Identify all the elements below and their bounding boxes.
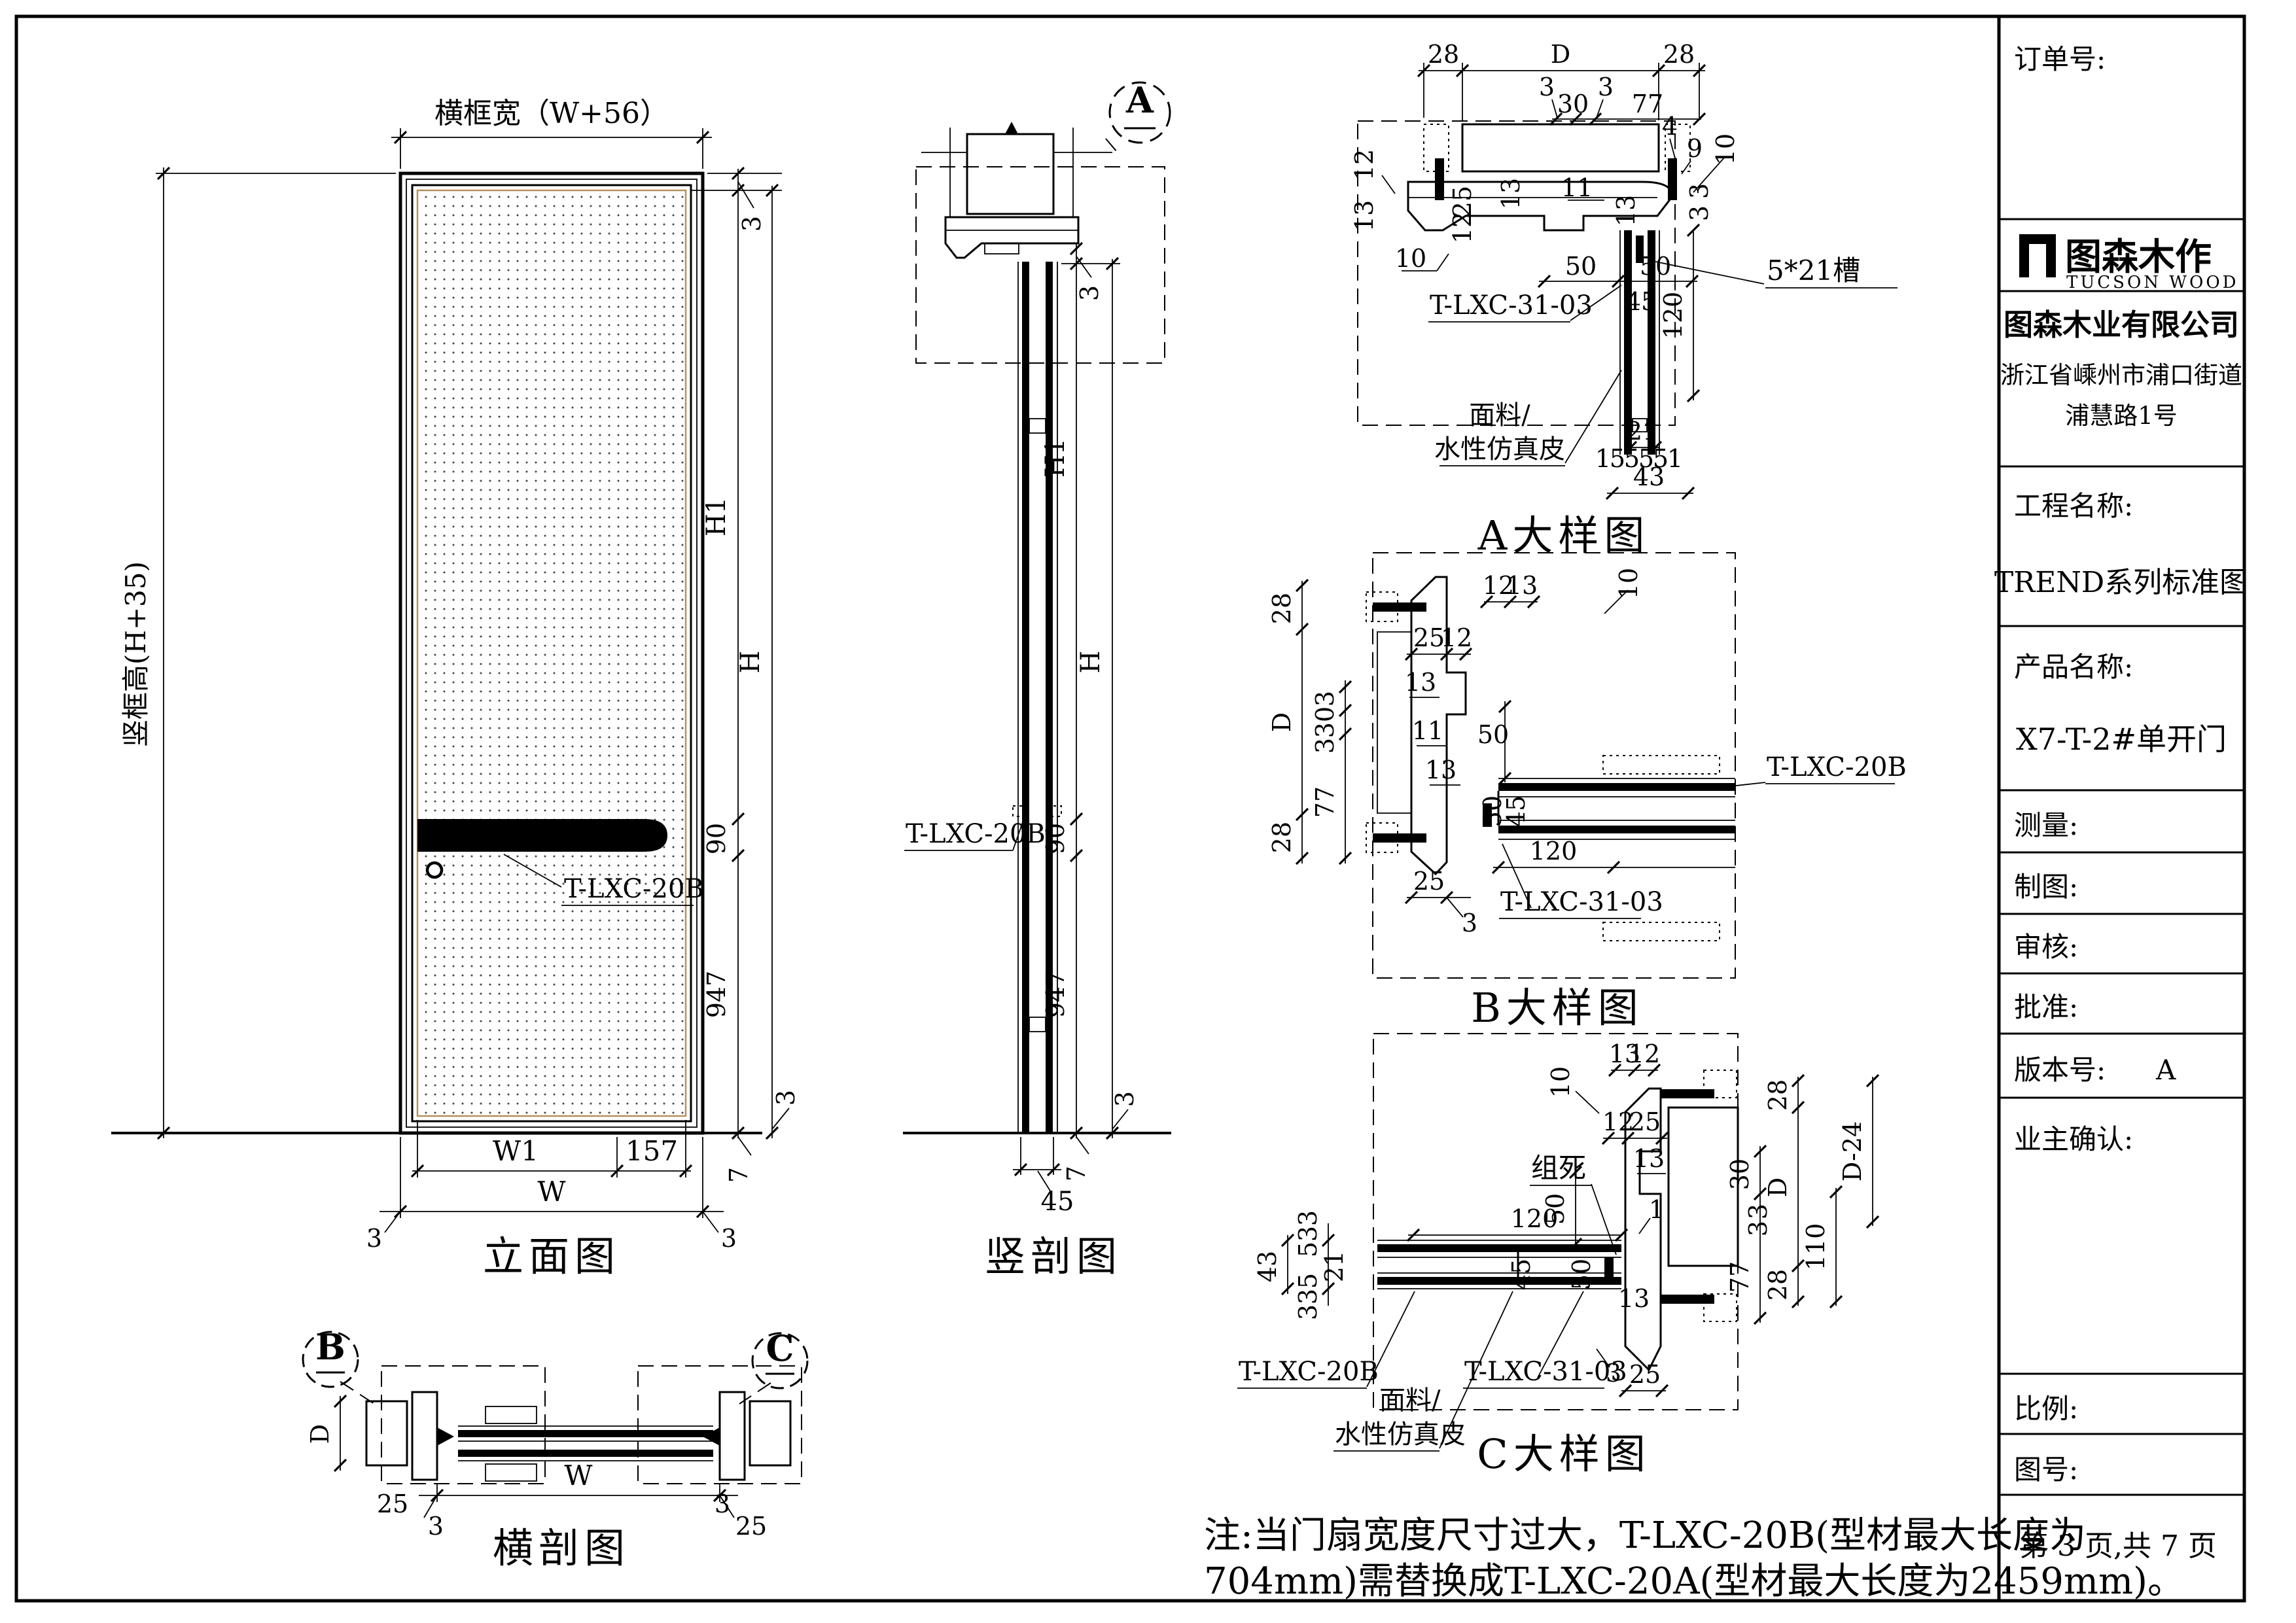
dim-25: 25 bbox=[377, 1490, 408, 1518]
dim-3: 3 bbox=[721, 1224, 737, 1253]
dim-947: 947 bbox=[702, 971, 731, 1019]
detail-a-view: 28 D 28 3 3 30 77 4 9 10 3 3 12 13 25 12… bbox=[1350, 40, 1898, 559]
label-t-lxc-31-03: T-LXC-31-03 bbox=[1430, 290, 1593, 321]
dim-28: 28 bbox=[1763, 1079, 1792, 1111]
dim-12: 12 bbox=[1441, 623, 1472, 652]
label-t-lxc-20b: T-LXC-20B bbox=[1239, 1357, 1379, 1387]
dim-110: 110 bbox=[1801, 1223, 1830, 1271]
dim-13: 13 bbox=[1425, 756, 1457, 784]
dim-77: 77 bbox=[1311, 786, 1339, 818]
draft-label: 制图: bbox=[2014, 871, 2078, 903]
label-t-lxc-20b: T-LXC-20B bbox=[1767, 752, 1907, 782]
dim-d: D bbox=[306, 1424, 334, 1444]
label-screw: 组死 bbox=[1531, 1152, 1586, 1184]
label-t-lxc-20b: T-LXC-20B bbox=[906, 819, 1046, 849]
dim-10: 10 bbox=[1395, 244, 1426, 273]
dim-3: 3 bbox=[1311, 738, 1339, 754]
caption-vertical-section: 竖剖图 bbox=[985, 1232, 1122, 1280]
dim-w: W bbox=[537, 1176, 566, 1208]
wall-hatch bbox=[1462, 124, 1659, 171]
marker-b-letter: B bbox=[315, 1326, 345, 1368]
dim-43: 43 bbox=[1633, 462, 1665, 491]
sheet-border bbox=[16, 16, 2244, 1601]
dim-120: 120 bbox=[1530, 837, 1578, 865]
dim-45: 45 bbox=[1041, 1187, 1074, 1217]
dim-45: 45 bbox=[1507, 1259, 1536, 1290]
label-t-lxc-20b: T-LXC-20B bbox=[564, 874, 704, 904]
jamb-profile bbox=[720, 1392, 745, 1480]
dim-157: 157 bbox=[626, 1135, 678, 1167]
drawing-no-label: 图号: bbox=[2014, 1454, 2078, 1486]
dim-43: 43 bbox=[1253, 1251, 1282, 1282]
dim-120: 120 bbox=[1511, 1204, 1559, 1233]
label-fabric-1: 面料/ bbox=[1469, 400, 1530, 430]
dim-d: D bbox=[1551, 40, 1570, 69]
dim-5: 5 bbox=[1294, 1273, 1322, 1289]
jamb-profile bbox=[412, 1392, 437, 1480]
dim-frame-width: 横框宽（W+56） bbox=[434, 97, 669, 130]
dim-3: 3 bbox=[428, 1512, 444, 1541]
label-fabric-2: 水性仿真皮 bbox=[1434, 434, 1565, 464]
dim-13: 13 bbox=[1350, 200, 1379, 232]
company-address-1: 浙江省嵊州市浦口街道 bbox=[2000, 361, 2242, 389]
dim-13: 13 bbox=[1506, 571, 1538, 600]
dim-7: 7 bbox=[1062, 1166, 1091, 1181]
logo-en: TUCSON WOOD bbox=[2066, 273, 2239, 292]
dim-3: 3 bbox=[737, 216, 766, 232]
dim-h1: H1 bbox=[701, 497, 732, 536]
dim-11: 11 bbox=[1561, 173, 1593, 202]
company-address-2: 浦慧路1号 bbox=[2065, 402, 2178, 430]
dim-21: 21 bbox=[1320, 1251, 1349, 1282]
dim-3: 3 bbox=[1685, 183, 1714, 199]
dim-13: 13 bbox=[1618, 1284, 1650, 1313]
dim-1: 1 bbox=[1595, 444, 1611, 473]
drawing-sheet: 订单号: 图森木作 TUCSON WOOD 图森木业有限公司 浙江省嵊州市浦口街… bbox=[0, 0, 2296, 1623]
dim-h: H bbox=[735, 651, 766, 674]
door-handle bbox=[417, 819, 667, 852]
dim-25: 25 bbox=[735, 1512, 767, 1541]
dim-w1: W1 bbox=[493, 1135, 539, 1167]
detail-c-view: 13 12 10 12 25 13 组死 50 120 1 13 45 50 3… bbox=[1237, 1034, 1879, 1478]
dim-45: 45 bbox=[1502, 795, 1530, 827]
head-frame-profile bbox=[945, 217, 1078, 258]
dim-h: H bbox=[1076, 651, 1106, 674]
dim-3: 3 bbox=[1685, 205, 1714, 221]
company-name: 图森木业有限公司 bbox=[2004, 307, 2239, 342]
project-value: TREND系列标准图 bbox=[1994, 566, 2248, 599]
dim-5: 5 bbox=[1610, 444, 1625, 473]
title-block: 订单号: 图森木作 TUCSON WOOD 图森木业有限公司 浙江省嵊州市浦口街… bbox=[1994, 16, 2248, 1601]
dim-12: 12 bbox=[1350, 149, 1379, 181]
dim-12: 12 bbox=[1448, 212, 1477, 243]
dim-12: 12 bbox=[1629, 1039, 1660, 1068]
dim-13: 13 bbox=[1612, 195, 1640, 226]
dim-3: 3 bbox=[715, 1490, 730, 1518]
dim-d: D bbox=[1267, 712, 1296, 732]
dim-3: 3 bbox=[1539, 73, 1555, 101]
dim-1: 1 bbox=[1649, 1195, 1665, 1224]
dim-3: 3 bbox=[1110, 1091, 1139, 1107]
caption-detail-c: C大样图 bbox=[1477, 1430, 1650, 1478]
dim-10: 10 bbox=[1546, 1066, 1575, 1098]
wall-hatch bbox=[366, 1401, 407, 1465]
dim-947: 947 bbox=[1041, 971, 1070, 1019]
marker-a-letter: A bbox=[1125, 79, 1154, 121]
dim-3: 3 bbox=[1744, 1204, 1773, 1219]
dim-d: D bbox=[1763, 1178, 1792, 1197]
dim-4: 4 bbox=[1662, 112, 1678, 141]
dim-120: 120 bbox=[1659, 292, 1687, 340]
dim-30: 30 bbox=[1557, 90, 1589, 118]
product-label: 产品名称: bbox=[2014, 651, 2133, 683]
dim-3: 3 bbox=[366, 1224, 382, 1253]
dim-3: 3 bbox=[1462, 909, 1477, 937]
dim-h1: H1 bbox=[1040, 438, 1070, 478]
dim-28: 28 bbox=[1663, 40, 1695, 69]
head-wall-hatch bbox=[967, 134, 1053, 214]
dim-3: 3 bbox=[1294, 1289, 1322, 1304]
review-label: 审核: bbox=[2014, 931, 2078, 963]
order-number-label: 订单号: bbox=[2014, 43, 2106, 75]
dim-13: 13 bbox=[1405, 668, 1436, 697]
dim-3: 3 bbox=[1311, 691, 1339, 707]
dim-30: 30 bbox=[1725, 1159, 1754, 1190]
dim-d-24: D-24 bbox=[1838, 1121, 1867, 1181]
slot-5x21 bbox=[1604, 1257, 1614, 1277]
dim-50: 50 bbox=[1640, 252, 1671, 281]
dim-50: 50 bbox=[1477, 720, 1509, 749]
scale-label: 比例: bbox=[2014, 1393, 2078, 1425]
dim-90: 90 bbox=[702, 823, 731, 854]
dim-28: 28 bbox=[1267, 593, 1296, 624]
label-t-lxc-31-03: T-LXC-31-03 bbox=[1500, 887, 1663, 917]
dim-3: 3 bbox=[1294, 1304, 1322, 1320]
dim-25: 25 bbox=[1413, 867, 1445, 896]
dim-10: 10 bbox=[1711, 133, 1740, 165]
caption-elevation: 立面图 bbox=[483, 1232, 620, 1280]
product-value: X7-T-2#单开门 bbox=[2016, 722, 2227, 757]
dim-11: 11 bbox=[1412, 716, 1443, 745]
dim-10: 10 bbox=[1614, 568, 1643, 599]
dim-28: 28 bbox=[1267, 822, 1296, 853]
dim-50: 50 bbox=[1565, 252, 1597, 281]
dim-21: 21 bbox=[1627, 417, 1658, 445]
door-leaf bbox=[417, 190, 686, 1116]
measure-label: 测量: bbox=[2014, 809, 2078, 841]
dim-7: 7 bbox=[724, 1167, 753, 1183]
dim-3: 3 bbox=[771, 1090, 800, 1106]
horizontal-section-view: B C D W 25 3 3 25 横剖图 bbox=[303, 1326, 807, 1572]
dim-frame-height: 竖框高(H+35) bbox=[120, 561, 152, 747]
dim-77: 77 bbox=[1632, 90, 1663, 118]
dim-50: 50 bbox=[1567, 1259, 1596, 1290]
project-label: 工程名称: bbox=[2014, 490, 2133, 522]
dim-w: W bbox=[564, 1459, 593, 1492]
label-slot-5x21: 5*21槽 bbox=[1767, 254, 1860, 287]
dim-3: 3 bbox=[1598, 73, 1614, 101]
vertical-section-view: A 3 H1 90 947 H 3 7 T-LXC-20B 45 竖剖图 bbox=[903, 79, 1171, 1280]
note-line-2: 704mm)需替换成T-LXC-20A(型材最大长度为2459mm)。 bbox=[1204, 1560, 2184, 1603]
dim-45: 45 bbox=[1625, 287, 1657, 316]
caption-detail-b: B大样图 bbox=[1471, 984, 1644, 1032]
dim-77: 77 bbox=[1725, 1261, 1754, 1293]
elevation-view: T-LXC-20B 横框宽（W+56） 竖框高(H+35) 3 H1 90 94… bbox=[111, 97, 800, 1280]
dim-25: 25 bbox=[1629, 1108, 1661, 1136]
lock-cylinder bbox=[427, 863, 442, 877]
version-label: 版本号: bbox=[2014, 1054, 2106, 1086]
dim-1: 1 bbox=[1667, 444, 1683, 473]
dim-28: 28 bbox=[1763, 1269, 1792, 1300]
note-line-1: 注:当门扇宽度尺寸过大，T-LXC-20B(型材最大长度为 bbox=[1204, 1514, 2086, 1557]
detail-b-view: 28 D 28 3 30 3 77 12 13 10 25 12 13 11 1… bbox=[1267, 553, 1907, 1032]
dim-5: 5 bbox=[1294, 1242, 1322, 1257]
caption-horizontal-section: 横剖图 bbox=[493, 1524, 630, 1572]
marker-c-letter: C bbox=[766, 1327, 794, 1369]
label-fabric-1: 面料/ bbox=[1379, 1386, 1441, 1416]
owner-confirm-label: 业主确认: bbox=[2014, 1123, 2133, 1155]
dim-3: 3 bbox=[1294, 1226, 1322, 1242]
dim-13: 13 bbox=[1496, 178, 1525, 209]
tucson-logo-icon bbox=[2019, 234, 2056, 277]
dim-3: 3 bbox=[1744, 1221, 1773, 1236]
dim-3: 3 bbox=[1294, 1210, 1322, 1226]
dim-25: 25 bbox=[1629, 1360, 1661, 1389]
version-value: A bbox=[2155, 1054, 2176, 1086]
dim-9: 9 bbox=[1687, 134, 1703, 163]
dim-30: 30 bbox=[1311, 707, 1339, 738]
approve-label: 批准: bbox=[2014, 991, 2078, 1023]
dim-13: 13 bbox=[1633, 1144, 1665, 1173]
dim-3: 3 bbox=[1075, 285, 1104, 301]
wall-hatch bbox=[750, 1401, 790, 1465]
dim-28: 28 bbox=[1428, 40, 1459, 69]
